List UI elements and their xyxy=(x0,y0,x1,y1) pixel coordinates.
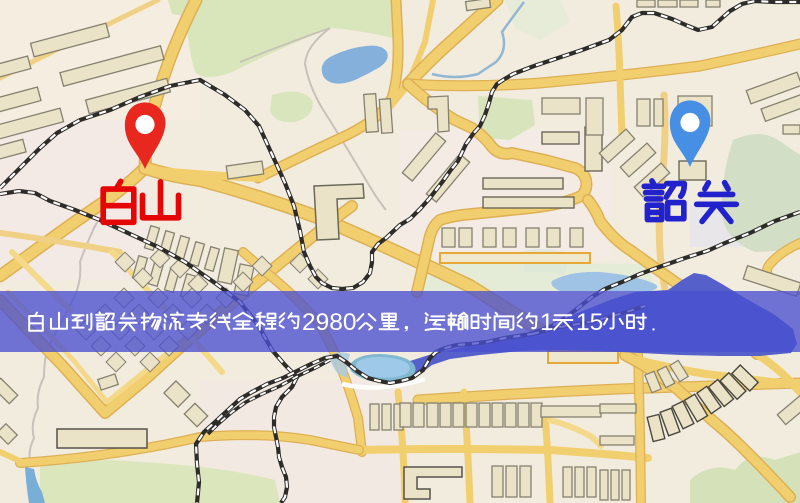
svg-text:1: 1 xyxy=(540,309,554,336)
svg-text:2980: 2980 xyxy=(302,309,357,336)
svg-text:15: 15 xyxy=(576,309,603,336)
